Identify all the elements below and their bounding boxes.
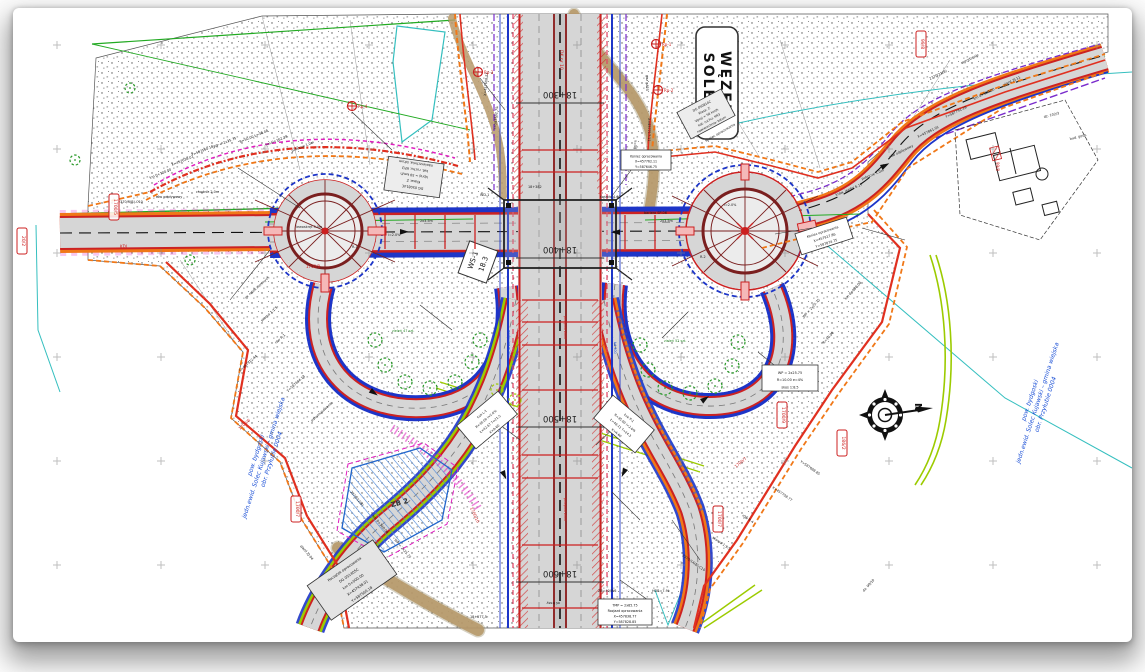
survey-grid-cross — [157, 353, 165, 361]
survey-grid-cross — [885, 457, 893, 465]
survey-grid-cross — [885, 561, 893, 569]
chainage-label: 18+300 — [543, 89, 577, 99]
benchmark-label: Rp-3 — [484, 70, 494, 75]
annotation-label: 99/8 — [995, 162, 1000, 171]
annotation-label: kd 300 — [613, 342, 617, 354]
survey-grid-cross — [781, 561, 789, 569]
info-box-line: X=457762.11 — [635, 160, 657, 164]
tree-symbol-center — [714, 385, 716, 387]
parcel-stamp-label: 1700/9 — [780, 407, 786, 423]
survey-grid-cross — [53, 41, 61, 49]
chainage-label: 18+500 — [543, 413, 577, 423]
tree-symbol-center — [189, 259, 191, 261]
info-box: DG 050814CKlasa: ZVproj = 50 km/hkat. ru… — [384, 156, 444, 197]
tree-symbol-center — [129, 87, 131, 89]
annotation-label: oś trasy — [547, 601, 561, 605]
annotation-label: R-1 — [352, 245, 358, 249]
survey-grid-cross — [885, 353, 893, 361]
svg-text:pow. bydgoski jedn.ewi: pow. bydgoski jedn.ewid. Solec Kujawski … — [1007, 337, 1069, 467]
info-box-line: Rozjazd opracowania — [608, 609, 643, 613]
tree-symbol-center — [689, 392, 691, 394]
tree-symbol-center — [74, 159, 76, 161]
annotation-label: 1700/8 — [306, 264, 321, 269]
annotation-label: dz. 99/10 — [862, 578, 876, 592]
annotation-label: WD-1 — [480, 193, 489, 197]
annotation-label: 2x3.5m — [660, 219, 674, 223]
parcel-stamp-label: 1700/7 — [294, 501, 300, 517]
annotation-label: Y=587688.85 — [799, 460, 820, 477]
tree-symbol-center — [496, 389, 498, 391]
survey-grid-cross — [53, 145, 61, 153]
compass-rose: N — [859, 389, 933, 441]
buildings — [955, 100, 1098, 240]
tree-symbol-center — [514, 399, 516, 401]
annotation-label: HDB=7.9k — [652, 589, 670, 593]
survey-grid-cross — [989, 249, 997, 257]
survey-grid-cross — [261, 561, 269, 569]
annotation-label: rów odpływowy — [156, 195, 182, 199]
benchmark-label: Rp-4 — [358, 104, 368, 109]
survey-grid-cross — [53, 457, 61, 465]
parcel-stamp-label: 186/2 — [840, 436, 846, 449]
info-box-line: skos 1:8.5 — [781, 386, 798, 390]
survey-grid-cross — [1093, 249, 1101, 257]
drawing-sheet: ZB 2 — [13, 8, 1132, 642]
tree-symbol-center — [737, 341, 739, 343]
annotation-label: zieleń 52 szt. — [664, 339, 686, 343]
plan-drawing: ZB 2 — [13, 8, 1132, 642]
annotation-label: ZB=40/W6 — [598, 589, 616, 593]
annotation-label: bariera SP-06 — [644, 211, 667, 215]
survey-grid-cross — [157, 561, 165, 569]
chainage-label: 18+600 — [543, 568, 577, 578]
annotation-label: bud. gosp. — [1069, 133, 1087, 141]
annotation-label: i=2.0% — [388, 233, 401, 237]
info-box-line: Koniec opracowania — [630, 154, 662, 158]
annotation-label: X=457717.11 — [647, 118, 651, 142]
annotation-label: R-2 — [700, 255, 706, 259]
tree-symbol-center — [404, 381, 406, 383]
annotation-label: X=457708.77 — [771, 486, 793, 503]
benchmark-label: Rp-2 — [664, 88, 674, 93]
survey-grid-cross — [1093, 561, 1101, 569]
annotation-label: gaz gA25 — [645, 75, 649, 91]
tree-symbol-center — [639, 344, 641, 346]
survey-grid-cross — [53, 353, 61, 361]
tree-symbol-center — [647, 369, 649, 371]
info-box-line: X=457838.77 — [614, 614, 637, 618]
annotation-label: przepust ø800 — [563, 316, 567, 339]
info-box-line: WP = 2x25.75 — [778, 371, 802, 375]
tree-symbol-center — [731, 365, 733, 367]
info-box: TMP = 2x85.75Rozjazd opracowaniaX=457838… — [598, 599, 652, 625]
info-box-line: R=10.00 e=4% — [777, 378, 804, 382]
annotation-label: zjazd ZJ-04 — [299, 544, 314, 561]
tree-symbol-center — [479, 339, 481, 341]
annotation-label: zieleń 47 szt. — [392, 329, 414, 333]
screenshot-background: ZB 2 — [0, 0, 1145, 672]
survey-grid-cross — [989, 353, 997, 361]
parcel-stamp-label: 20/2 — [20, 236, 26, 246]
survey-grid-cross — [157, 457, 165, 465]
survey-grid-cross — [989, 561, 997, 569]
tree-symbol-center — [664, 387, 666, 389]
info-box: Koniec opracowaniaX=457762.11Y=587646.75 — [621, 150, 671, 170]
survey-grid-cross — [1093, 457, 1101, 465]
chainage-label: 18+400 — [543, 244, 577, 254]
survey-grid-cross — [53, 561, 61, 569]
tree-symbol-center — [374, 339, 376, 341]
survey-grid-cross — [989, 457, 997, 465]
annotation-label: przepust ø600 — [563, 498, 567, 521]
info-box: WP = 2x25.75R=10.00 e=4%skos 1:8.5 — [762, 365, 818, 391]
cadastral-note-east: pow. bydgoski jedn.ewid. Solec Kujawski … — [1007, 337, 1069, 467]
parcel-stamp-label: 1700/7 — [716, 511, 722, 527]
annotation-label: wodociąg w160 — [507, 330, 511, 356]
annotation-label: 2x3.5m — [420, 219, 434, 223]
tree-symbol-center — [429, 387, 431, 389]
survey-grid-cross — [53, 249, 61, 257]
annotation-label: KDL — [120, 244, 129, 249]
annotation-label: 18+577.5 — [470, 615, 487, 619]
survey-grid-cross — [1093, 353, 1101, 361]
tree-symbol-center — [384, 364, 386, 366]
annotation-label: chodnik 2.0m — [196, 190, 220, 194]
benchmark-label: Rp-1 — [662, 42, 672, 47]
annotation-label: i=2.0% — [724, 203, 737, 207]
info-box-line: Y=587828.85 — [614, 620, 637, 624]
tree-symbol-center — [454, 381, 456, 383]
annotation-label: 18+382 — [528, 185, 542, 189]
parcel-stamp-label: 1700/5 — [112, 199, 118, 215]
annotation-label: 2370/3(B)-C10 — [118, 200, 143, 204]
parcel-stamp-label: 99/8 — [919, 39, 925, 49]
info-box-line: Y=587646.75 — [635, 165, 657, 169]
survey-grid-cross — [1093, 145, 1101, 153]
tree-symbol-center — [471, 361, 473, 363]
annotation-label: DK nr 10 — [558, 50, 564, 70]
compass-north-label: N — [912, 403, 923, 411]
annotation-label: lewoskręt 3.0m — [296, 225, 323, 229]
info-box-line: TMP = 2x85.75 — [611, 603, 637, 607]
annotation-label: światło 4.60 — [600, 195, 621, 199]
annotation-label: dz. 102/3 — [1043, 111, 1059, 119]
